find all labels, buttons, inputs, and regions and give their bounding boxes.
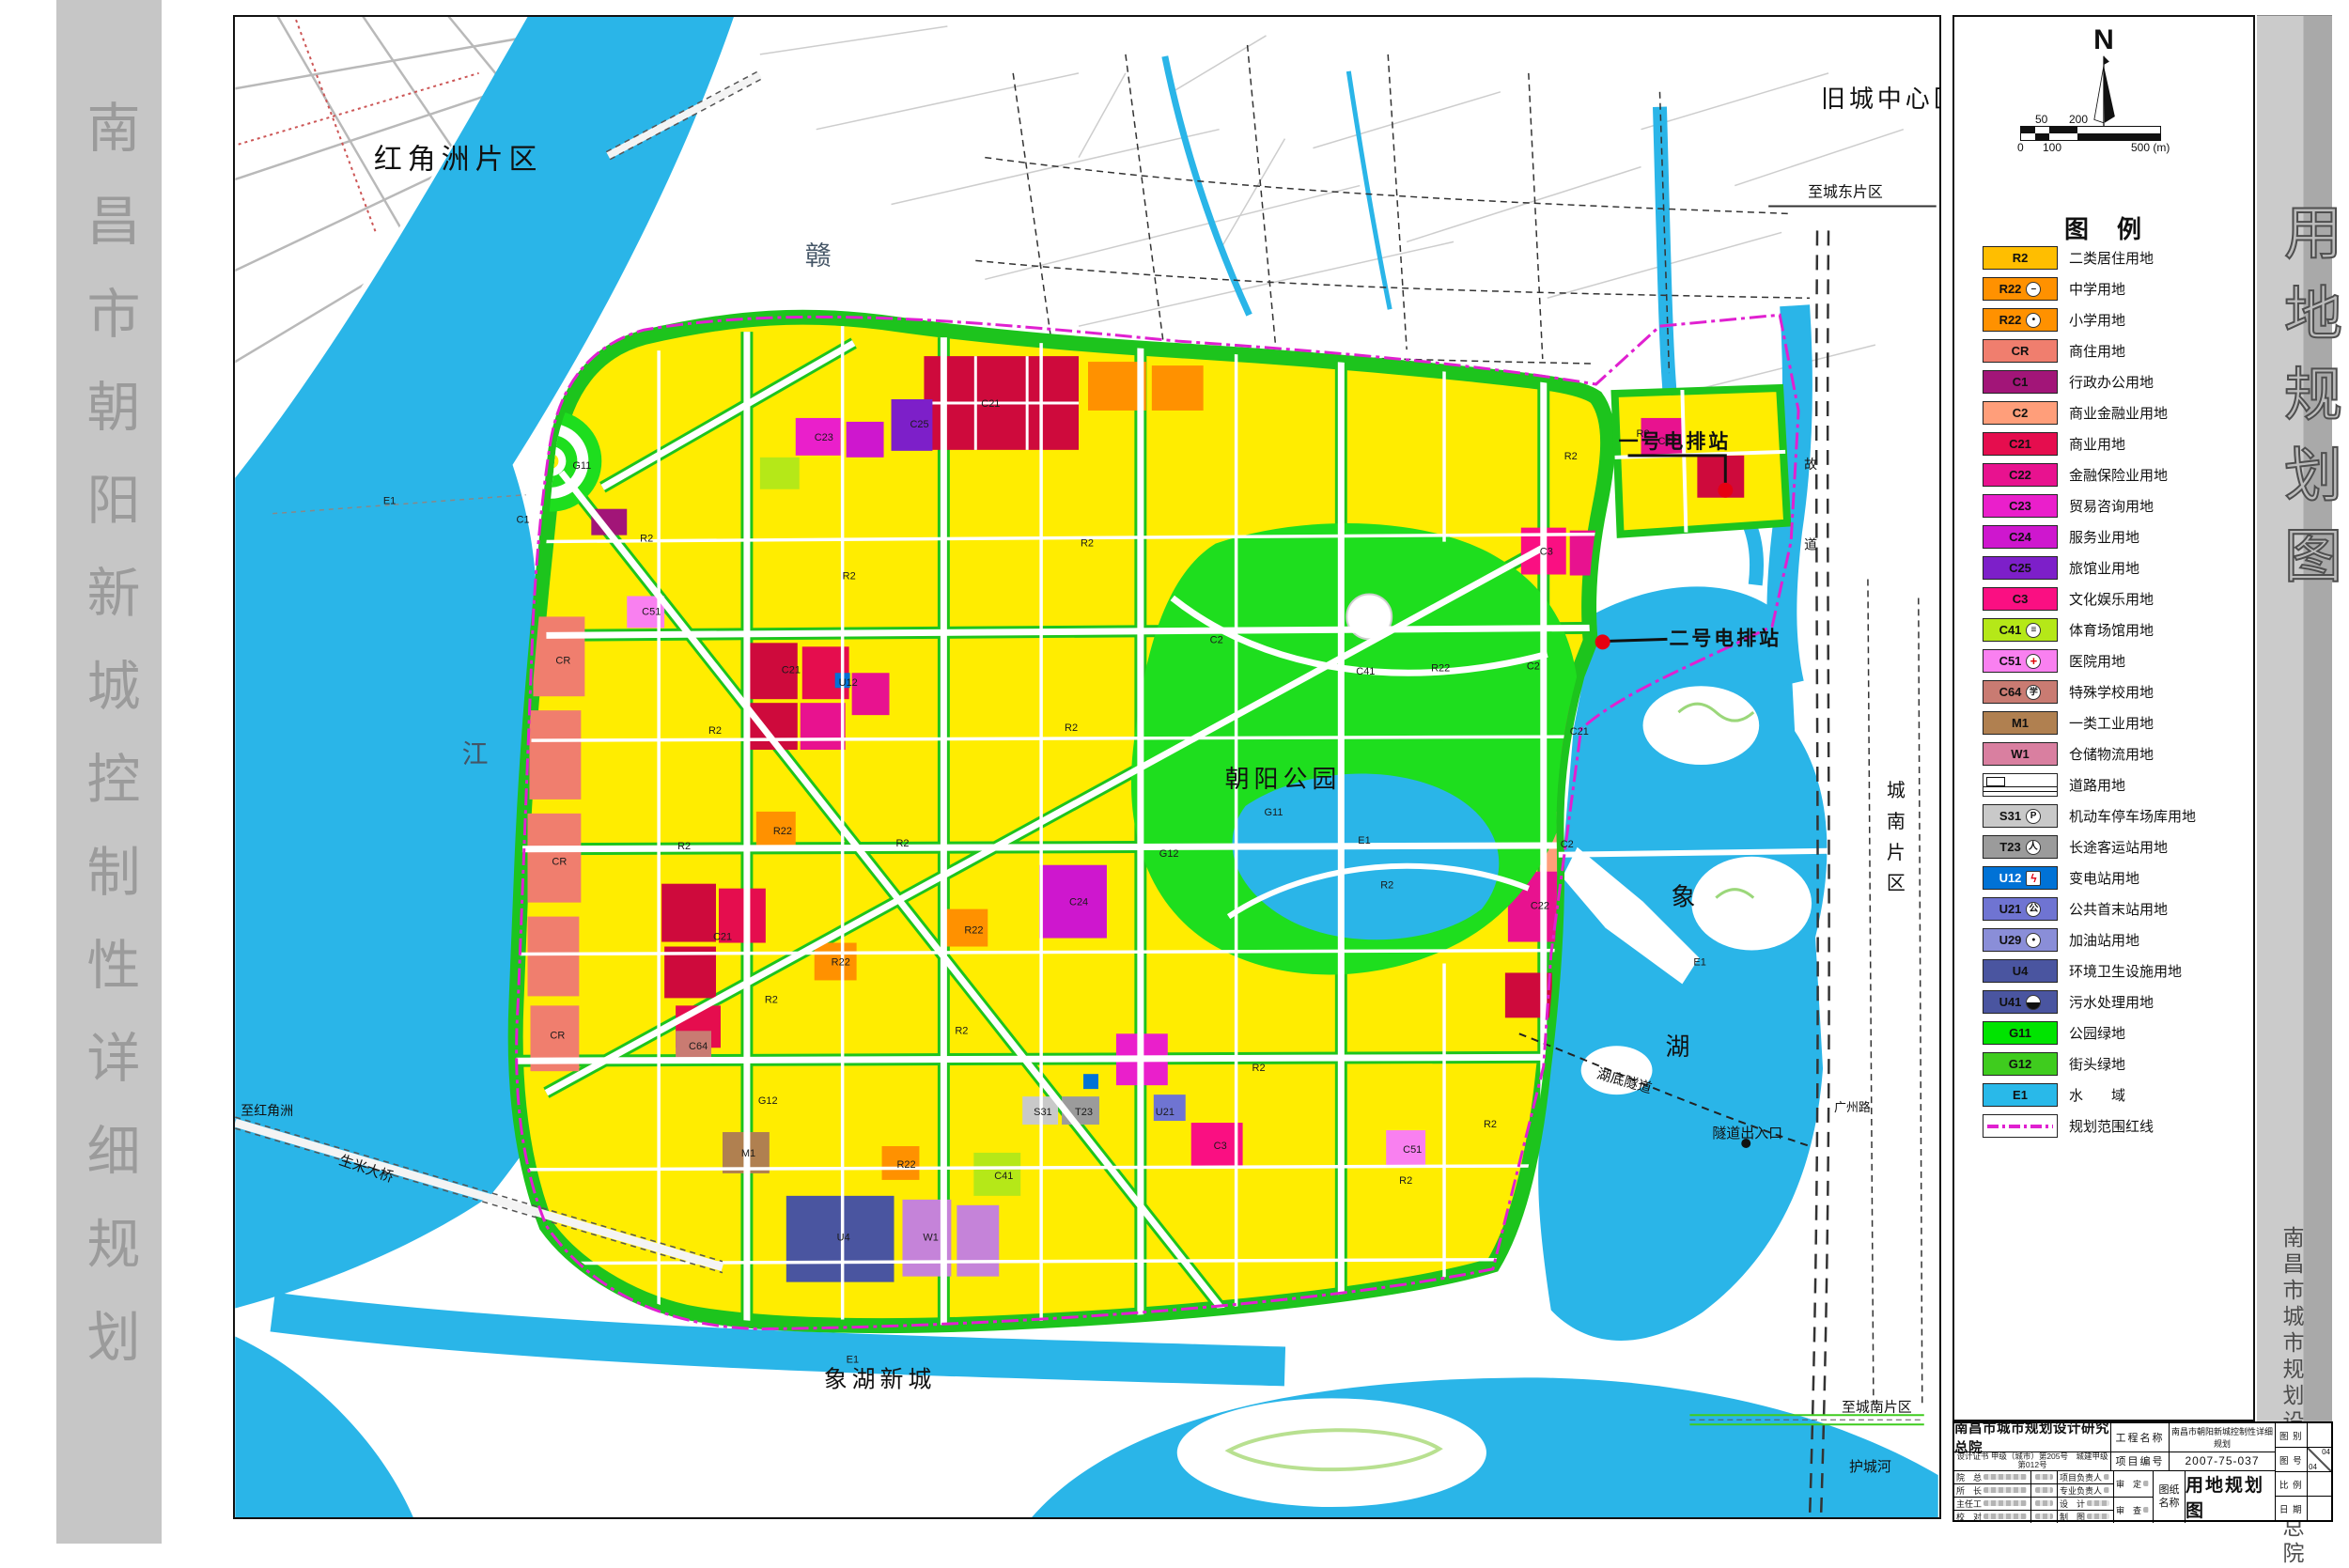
legend-label: 水 域 [2069,1085,2125,1105]
legend-code: C25 [2009,561,2031,575]
block-code: C3 [1214,1141,1227,1152]
legend-label: 一类工业用地 [2069,713,2154,733]
legend-swatch: C21 [1983,432,2058,456]
block-code: R2 [1484,1119,1497,1130]
legend-code: S31 [1999,809,2021,823]
legend-row: C25旅馆业用地 [1983,556,2248,580]
legend-label: 二类居住用地 [2069,248,2154,268]
map-label: 广州路 [1834,1100,1871,1114]
block-code: R2 [843,571,856,582]
block-code: E1 [847,1354,859,1365]
pump-icon: ● [2026,933,2041,948]
legend-code: C24 [2009,530,2031,544]
legend-swatch: C1 [1983,370,2058,394]
project-number-label: 项目编号 [2111,1452,2170,1470]
block-code: R22 [832,956,850,968]
meta-row: 图 别 [2276,1423,2331,1448]
staff-cell [2031,1471,2057,1484]
staff-cell: 审 定 [2114,1471,2153,1498]
bolt-icon: ϟ [2026,871,2041,886]
legend-swatch: C51+ [1983,649,2058,673]
legend-row: E1水 域 [1983,1083,2248,1107]
legend-row: C51+医院用地 [1983,649,2248,673]
land-use-map: R2R2R2R2R2R2R2R2R2R2R2R2R2R2R2R22R22R22R… [235,17,1939,1517]
staff-cell: 制 图 [2058,1511,2113,1523]
legend-code: C2 [2013,406,2029,420]
block-code: C41 [1356,666,1375,677]
block-code: C51 [1403,1144,1422,1156]
ren-icon: 人 [2026,840,2041,855]
legend-swatch: R2 [1983,246,2058,270]
equiv-icon: ≡ [2026,623,2041,638]
legend-code: U21 [1999,902,2022,916]
legend-row: R22•小学用地 [1983,308,2248,332]
block-code: CR [552,857,567,868]
station-label: 二号电排站 [1669,627,1781,649]
ne-pocket [1615,388,1788,535]
legend-list: R2二类居住用地R22–中学用地R22•小学用地CR商住用地C1行政办公用地C2… [1983,246,2248,1145]
block-code: C64 [689,1041,708,1052]
scale-ticks-bottom: 0100500 (m) [2020,141,2174,154]
block-code: C3 [1540,547,1553,558]
legend-row: U21公公共首末站用地 [1983,897,2248,921]
legend-code: M1 [2012,716,2029,730]
project-name-label: 工程名称 [2111,1423,2170,1452]
legend-swatch: U41 [1983,990,2058,1014]
staff-cell [2031,1498,2057,1511]
legend-row: CR商住用地 [1983,339,2248,363]
legend-label: 环境卫生设施用地 [2069,961,2182,981]
legend-row: U41污水处理用地 [1983,990,2248,1014]
legend-code: C41 [1999,623,2022,637]
staff-column-mid: 项目负责人专业负责人设 计制 图 [2058,1471,2114,1523]
dot-icon: • [2026,313,2041,328]
scale-tick: 0 [2017,141,2024,154]
legend-label: 文化娱乐用地 [2069,589,2154,609]
legend-row: U4环境卫生设施用地 [1983,959,2248,983]
legend-swatch: C41≡ [1983,618,2058,642]
legend-label: 特殊学校用地 [2069,682,2154,702]
scale-tick: 100 [2043,141,2061,154]
gong-icon: 公 [2026,902,2041,917]
block-code: R2 [1380,880,1393,892]
legend-row: C64学特殊学校用地 [1983,680,2248,704]
block-code: S31 [1034,1107,1052,1118]
station-label: 一号电排站 [1619,430,1732,453]
legend-swatch: T23人 [1983,835,2058,859]
title-block-main: 南昌市城市规划设计研究总院 工程名称 南昌市朝阳新城控制性详细规划 设计证书 甲… [1954,1423,2276,1520]
map-label: 赣 [805,241,832,270]
block-code: G12 [758,1095,778,1107]
block-code: U12 [839,677,858,689]
legend-label: 商业用地 [2069,434,2125,454]
legend-swatch: M1 [1983,711,2058,735]
block-code: C1 [517,515,530,526]
block-code: R2 [708,725,722,737]
block-code: C21 [713,932,732,943]
staff-cell: 校 对 [1954,1511,2030,1523]
legend-swatch: U21公 [1983,897,2058,921]
block-code: C51 [642,606,661,617]
block-code: C22 [1531,901,1549,912]
map-label: 红角洲片区 [374,145,542,176]
block-code: C24 [1069,897,1088,908]
scale-ticks-top: 50200 [2020,113,2174,126]
P-icon: P [2026,809,2041,824]
legend-row: U12ϟ变电站用地 [1983,866,2248,890]
north-label: N [2093,26,2114,54]
legend-code: C23 [2009,499,2031,513]
legend-code: C51 [1999,654,2022,668]
scale-tick: 50 [2035,113,2047,126]
legend-label: 商业金融业用地 [2069,403,2168,423]
legend-row: R2二类居住用地 [1983,246,2248,270]
legend-label: 污水处理用地 [2069,992,2154,1012]
legend-code: C21 [2009,437,2031,451]
legend-panel: N 50200 0100500 (m) 图 例 R2二类居住用地R22–中学用地… [1952,15,2255,1421]
staff-cell: 设 计 [2058,1498,2113,1511]
block-code: C21 [782,664,801,675]
block-code: R2 [677,841,691,852]
legend-swatch: S31P [1983,804,2058,828]
project-name-value: 南昌市朝阳新城控制性详细规划 [2170,1423,2275,1452]
legend-swatch: C2 [1983,401,2058,425]
legend-row: G12街头绿地 [1983,1052,2248,1076]
block-code: R22 [964,925,983,937]
legend-swatch: R22• [1983,308,2058,332]
legend-code: W1 [2011,747,2030,761]
legend-row: G11公园绿地 [1983,1021,2248,1045]
map-label: 护城河 [1849,1459,1891,1475]
map-label: 朝阳公园 [1225,766,1342,793]
block-code: G11 [572,460,591,472]
scale-tick: 200 [2069,113,2088,126]
staff-cell [2031,1511,2057,1523]
legend-label: 小学用地 [2069,310,2125,330]
right-margin-strip: 用地规划图 南昌市城市规划设计研究总院 [2257,15,2332,1422]
legend-row: C1行政办公用地 [1983,370,2248,394]
block-code: R22 [897,1159,916,1171]
legend-label: 商住用地 [2069,341,2125,361]
staff-column-review: 审 定审 查 [2114,1471,2154,1523]
scale-bar: 50200 0100500 (m) [2020,113,2174,154]
legend-code: R22 [1999,313,2022,327]
legend-label: 公共首末站用地 [2069,899,2168,919]
block-code: C2 [1210,634,1223,645]
legend-swatch: C64学 [1983,680,2058,704]
legend-row: S31P机动车停车场库用地 [1983,804,2248,828]
legend-label: 变电站用地 [2069,868,2139,888]
block-code: C21 [981,398,1000,410]
station-dot-icon [1595,634,1610,649]
xue-icon: 学 [2026,685,2041,700]
meta-row: 日 期 [2276,1497,2331,1520]
map-label: 至城南片区 [1842,1399,1912,1415]
legend-code: U41 [1999,995,2022,1009]
block-code: R2 [1252,1063,1266,1074]
legend-row: M1一类工业用地 [1983,711,2248,735]
map-label: 至红角洲 [241,1103,293,1118]
legend-code: G11 [2009,1026,2031,1040]
block-code: G11 [1265,807,1283,818]
legend-label: 道路用地 [2069,775,2125,795]
block-code: R2 [955,1025,968,1036]
legend-row: T23人长途客运站用地 [1983,835,2248,859]
legend-label: 机动车停车场库用地 [2069,806,2196,826]
staff-column-sign [2031,1471,2058,1523]
legend-code: R2 [2013,251,2029,265]
scale-bar-graphic [2020,126,2161,141]
legend-swatch: C24 [1983,525,2058,549]
cross-icon: + [2026,654,2041,669]
block-code: U21 [1156,1107,1174,1118]
legend-label: 旅馆业用地 [2069,558,2139,578]
legend-label: 体育场馆用地 [2069,620,2154,640]
legend-label: 仓储物流用地 [2069,744,2154,764]
block-code: C21 [1570,726,1589,737]
legend-code: CR [2012,344,2030,358]
block-code: C41 [994,1171,1013,1182]
legend-swatch: U4 [1983,959,2058,983]
map-label: 至城东片区 [1808,184,1883,201]
legend-swatch: G11 [1983,1021,2058,1045]
legend-row: C23贸易咨询用地 [1983,494,2248,518]
institute-name: 南昌市城市规划设计研究总院 [1954,1423,2111,1452]
map-label: 江 [462,739,489,768]
block-code: C2 [1527,660,1540,672]
left-margin-strip: 南昌市朝阳新城控制性详细规划 [56,0,162,1544]
block-code: R2 [896,838,910,849]
legend-swatch: U12ϟ [1983,866,2058,890]
legend-label: 街头绿地 [2069,1054,2125,1074]
block-code: E1 [383,496,396,507]
legend-label: 医院用地 [2069,651,2125,671]
legend-label: 金融保险业用地 [2069,465,2168,485]
legend-swatch: G12 [1983,1052,2058,1076]
block-code: R2 [1399,1175,1412,1187]
legend-row: C2商业金融业用地 [1983,401,2248,425]
legend-row: C22金融保险业用地 [1983,463,2248,487]
project-number-value: 2007-75-037 [2170,1452,2275,1470]
sheet-name-value: 用地规划图 [2186,1471,2275,1523]
map-frame: R2R2R2R2R2R2R2R2R2R2R2R2R2R2R2R22R22R22R… [233,15,1941,1519]
legend-row: W1仓储物流用地 [1983,742,2248,766]
scale-tick: 500 (m) [2131,141,2170,154]
block-code: G12 [1159,848,1179,860]
block-code: CR [555,655,570,666]
legend-swatch [1983,773,2058,797]
legend-code: E1 [2013,1088,2028,1102]
station-leader [1610,639,1668,641]
legend-label: 服务业用地 [2069,527,2139,547]
legend-row: 规划范围红线 [1983,1114,2248,1138]
legend-label: 贸易咨询用地 [2069,496,2154,516]
block-code: T23 [1075,1107,1093,1118]
map-label: 象 [1671,884,1695,911]
block-code: R22 [1431,662,1450,674]
block-code: R2 [1564,451,1578,462]
block-code: R2 [765,994,778,1005]
block-code: CR [550,1030,565,1041]
station-dot-icon [1718,483,1733,498]
planning-sheet: { "left_strip": { "title": "南昌市朝阳新城控制性详细… [0,0,2349,1544]
map-label: 湖 [1665,1034,1689,1061]
sheet-title-vertical: 用地规划图 [2264,202,2349,606]
staff-cell: 审 查 [2114,1498,2153,1523]
block-code: R2 [640,534,653,545]
meta-row: 图 号0404 [2276,1448,2331,1472]
half-icon [2026,995,2041,1010]
legend-swatch: C3 [1983,587,2058,611]
staff-cell: 专业负责人 [2058,1484,2113,1498]
legend-label: 加油站用地 [2069,930,2139,950]
meta-row: 比 例 [2276,1472,2331,1497]
plan-title-vertical: 南昌市朝阳新城控制性详细规划 [70,100,148,1402]
legend-code: G12 [2009,1057,2032,1071]
legend-row: C21商业用地 [1983,432,2248,456]
legend-code: C3 [2013,592,2029,606]
map-label: 隧道出入口 [1712,1126,1782,1141]
legend-code: U4 [2013,964,2029,978]
legend-row: U29●加油站用地 [1983,928,2248,952]
legend-code: C22 [2009,468,2031,482]
block-code: U4 [837,1233,850,1244]
legend-swatch: C25 [1983,556,2058,580]
legend-row: 道路用地 [1983,773,2248,797]
legend-row: R22–中学用地 [1983,277,2248,301]
legend-row: C41≡体育场馆用地 [1983,618,2248,642]
legend-swatch: C22 [1983,463,2058,487]
legend-swatch [1983,1114,2058,1138]
legend-code: U29 [1999,933,2022,947]
block-code: C23 [815,432,833,443]
legend-swatch: CR [1983,339,2058,363]
legend-label: 长途客运站用地 [2069,837,2168,857]
legend-code: U12 [1999,871,2022,885]
block-code: M1 [741,1148,755,1159]
staff-cell [2031,1484,2057,1498]
legend-code: C64 [1999,685,2022,699]
title-block-meta: 图 别图 号0404比 例日 期 [2276,1423,2331,1520]
block-code: R2 [1065,722,1078,734]
block-code: C25 [910,419,928,430]
legend-label: 规划范围红线 [2069,1116,2154,1136]
legend-label: 公园绿地 [2069,1023,2125,1043]
lake-causeway [1559,851,1828,855]
legend-code: R22 [1999,282,2022,296]
map-label: 象湖新城 [824,1366,937,1392]
legend-code: T23 [1999,840,2020,854]
staff-cell: 主任工 [1954,1498,2030,1511]
legend-code: C1 [2013,375,2029,389]
legend-swatch: R22– [1983,277,2058,301]
title-block: 南昌市城市规划设计研究总院 工程名称 南昌市朝阳新城控制性详细规划 设计证书 甲… [1952,1421,2333,1522]
staff-cell: 院 总 [1954,1471,2030,1484]
legend-row: C24服务业用地 [1983,525,2248,549]
legend-label: 行政办公用地 [2069,372,2154,392]
legend-swatch: E1 [1983,1083,2058,1107]
legend-swatch: C23 [1983,494,2058,518]
staff-cell: 所 长 [1954,1484,2030,1498]
legend-label: 中学用地 [2069,279,2125,299]
staff-column-left: 院 总所 长主任工校 对 [1954,1471,2031,1523]
sheet-name-label: 图纸名称 [2154,1471,2186,1523]
block-code: R2 [1081,538,1094,550]
block-code: W1 [923,1233,938,1244]
block-code: C2 [1561,839,1574,850]
legend-swatch: U29● [1983,928,2058,952]
staff-cell: 项目负责人 [2058,1471,2113,1484]
minus-icon: – [2026,282,2041,297]
block-code: E1 [1693,956,1705,968]
legend-row: C3文化娱乐用地 [1983,587,2248,611]
license-text: 设计证书 甲级（城市）第205号 城建甲级第012号 [1954,1452,2111,1470]
legend-header: 图 例 [1954,210,2253,245]
block-code: R22 [773,826,792,837]
legend-swatch: W1 [1983,742,2058,766]
block-code: E1 [1358,835,1370,846]
map-label: 旧城中心区 [1821,85,1939,113]
